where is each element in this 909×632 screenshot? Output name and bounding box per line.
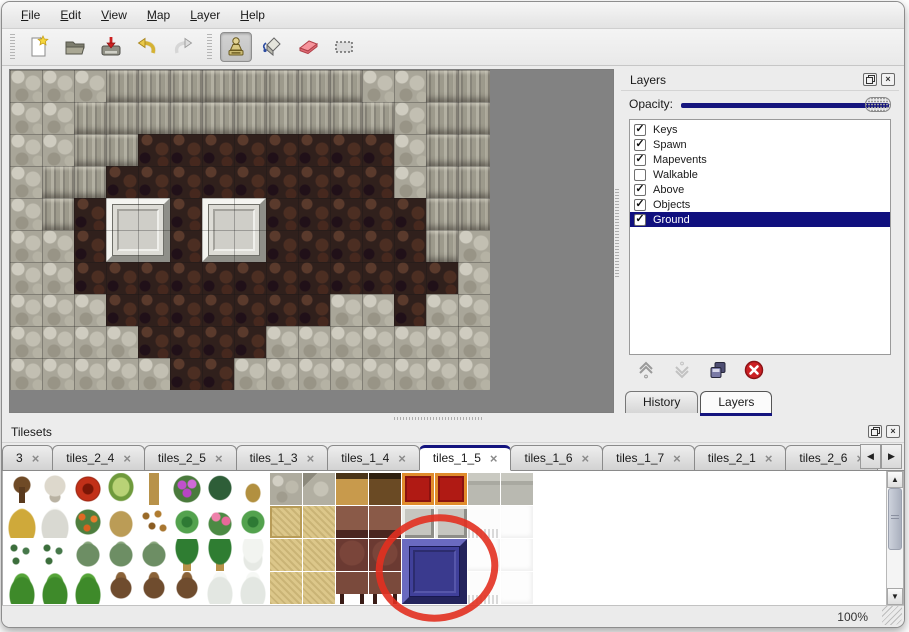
map-tile[interactable] xyxy=(298,358,330,390)
opacity-slider-handle[interactable] xyxy=(865,97,891,112)
tileset-tab-tiles_1_6[interactable]: tiles_1_6× xyxy=(510,445,603,470)
tileset-tile-stonecol[interactable] xyxy=(468,473,500,505)
new-map-button[interactable] xyxy=(23,32,55,62)
close-tab-icon[interactable]: × xyxy=(123,452,131,465)
tileset-tile-deadtwist[interactable] xyxy=(138,572,170,604)
tileset-tab-tiles_1_4[interactable]: tiles_1_4× xyxy=(327,445,420,470)
menu-item-help[interactable]: Help xyxy=(231,5,274,25)
duplicate-layer-button[interactable] xyxy=(707,359,729,384)
tab-history[interactable]: History xyxy=(625,391,698,413)
map-tile[interactable] xyxy=(426,134,458,166)
map-tile[interactable] xyxy=(10,294,42,326)
map-platform-inner xyxy=(213,209,255,251)
map-tile[interactable] xyxy=(298,134,330,166)
tileset-tile-pinkflower[interactable] xyxy=(204,506,236,538)
tileset-tile-palm[interactable] xyxy=(204,539,236,571)
tileset-tile-drygrass[interactable] xyxy=(105,506,137,538)
tileset-tile-browntile[interactable] xyxy=(369,539,401,571)
menu-item-layer[interactable]: Layer xyxy=(181,5,229,25)
map-tile[interactable] xyxy=(138,358,170,390)
map-tile[interactable] xyxy=(106,294,138,326)
map-tile[interactable] xyxy=(266,166,298,198)
tileset-tile-stump[interactable] xyxy=(105,473,137,505)
map-tile[interactable] xyxy=(170,294,202,326)
menu-item-file[interactable]: File xyxy=(12,5,49,25)
tileset-tile-tanweave[interactable] xyxy=(303,539,335,571)
tileset-tab-tiles_2_5[interactable]: tiles_2_5× xyxy=(144,445,237,470)
map-tile[interactable] xyxy=(426,102,458,134)
map-tile[interactable] xyxy=(106,102,138,134)
map-tile[interactable] xyxy=(74,230,106,262)
map-tile[interactable] xyxy=(458,262,490,294)
eraser-tool-button[interactable] xyxy=(292,32,324,62)
tilesets-panel-title: Tilesets xyxy=(11,425,864,439)
tileset-tile-deadtwist[interactable] xyxy=(171,572,203,604)
main-area: Layers × Opacity: ✓Keys✓Spawn✓MapeventsW… xyxy=(2,66,904,415)
duplicate-layer-icon xyxy=(707,359,729,381)
map-tile[interactable] xyxy=(458,198,490,230)
map-tile[interactable] xyxy=(234,326,266,358)
map-tile[interactable] xyxy=(74,166,106,198)
map-tile[interactable] xyxy=(74,198,106,230)
map-tile[interactable] xyxy=(330,198,362,230)
tileset-tile-conifer[interactable] xyxy=(39,572,71,604)
map-tile[interactable] xyxy=(362,198,394,230)
tileset-tab-tiles_1_7[interactable]: tiles_1_7× xyxy=(602,445,695,470)
map-tile[interactable] xyxy=(234,166,266,198)
app-window: FileEditViewMapLayerHelp xyxy=(1,1,905,628)
map-tile[interactable] xyxy=(138,134,170,166)
tileset-scrollbar[interactable]: ▲ ▼ xyxy=(886,471,903,605)
tileset-tile-tanedge[interactable] xyxy=(270,506,302,538)
tileset-tile-tablelegs[interactable] xyxy=(336,572,368,604)
scroll-down-arrow-icon[interactable]: ▼ xyxy=(887,588,903,605)
map-tile[interactable] xyxy=(330,134,362,166)
map-tile[interactable] xyxy=(106,166,138,198)
close-tab-icon[interactable]: × xyxy=(32,452,40,465)
tileset-tile-deadtree[interactable] xyxy=(39,473,71,505)
layer-checkbox[interactable]: ✓ xyxy=(634,154,646,166)
map-tile[interactable] xyxy=(298,262,330,294)
map-tile[interactable] xyxy=(10,102,42,134)
tileset-tile-bush[interactable] xyxy=(105,539,137,571)
map-tile[interactable] xyxy=(426,262,458,294)
tileset-tile-fringe[interactable] xyxy=(468,506,500,538)
tileset-blue-block[interactable] xyxy=(402,539,467,604)
map-tile[interactable] xyxy=(106,262,138,294)
tileset-tab-tiles_2_1[interactable]: tiles_2_1× xyxy=(694,445,787,470)
tileset-tile-tanweave[interactable] xyxy=(270,539,302,571)
map-tile[interactable] xyxy=(42,230,74,262)
map-tile[interactable] xyxy=(74,294,106,326)
layer-checkbox[interactable]: ✓ xyxy=(634,184,646,196)
map-tile[interactable] xyxy=(362,70,394,102)
tileset-tile-tablelegs[interactable] xyxy=(369,572,401,604)
map-tile[interactable] xyxy=(298,70,330,102)
map-tile[interactable] xyxy=(394,294,426,326)
map-tile[interactable] xyxy=(362,358,394,390)
map-tile[interactable] xyxy=(74,134,106,166)
layer-row-mapevents[interactable]: ✓Mapevents xyxy=(630,152,890,167)
tileset-tile-tanweave[interactable] xyxy=(303,506,335,538)
map-tile[interactable] xyxy=(330,102,362,134)
map-tile[interactable] xyxy=(234,102,266,134)
map-tile[interactable] xyxy=(170,70,202,102)
map-tile[interactable] xyxy=(202,294,234,326)
map-tile[interactable] xyxy=(394,326,426,358)
layer-checkbox[interactable]: ✓ xyxy=(634,199,646,211)
map-tile[interactable] xyxy=(330,294,362,326)
lower-layer-icon xyxy=(671,359,693,381)
map-tile[interactable] xyxy=(202,262,234,294)
float-panel-icon[interactable] xyxy=(863,73,877,86)
map-tile[interactable] xyxy=(458,166,490,198)
status-bar: 100% xyxy=(2,605,904,627)
map-tile[interactable] xyxy=(170,134,202,166)
scroll-tabs-left-button[interactable]: ◀ xyxy=(860,444,881,469)
map-tile[interactable] xyxy=(458,358,490,390)
horizontal-splitter[interactable] xyxy=(2,415,904,421)
tileset-tile-leaves[interactable] xyxy=(138,506,170,538)
map-canvas[interactable] xyxy=(9,69,614,413)
layer-checkbox[interactable]: ✓ xyxy=(634,214,646,226)
layer-checkbox[interactable]: ✓ xyxy=(634,139,646,151)
select-tool-icon xyxy=(332,35,356,59)
layer-checkbox[interactable] xyxy=(634,169,646,181)
tileset-tile-tanweave[interactable] xyxy=(303,572,335,604)
layer-row-spawn[interactable]: ✓Spawn xyxy=(630,137,890,152)
map-tile[interactable] xyxy=(202,70,234,102)
tileset-tab-label: tiles_2_6 xyxy=(799,451,847,465)
map-tile[interactable] xyxy=(266,134,298,166)
layers-panel: Layers × Opacity: ✓Keys✓Spawn✓MapeventsW… xyxy=(621,69,902,413)
map-tile[interactable] xyxy=(202,134,234,166)
tileset-tile-orangeflower[interactable] xyxy=(72,506,104,538)
map-tile[interactable] xyxy=(426,70,458,102)
map-tile[interactable] xyxy=(42,262,74,294)
map-tile[interactable] xyxy=(458,326,490,358)
map-tile[interactable] xyxy=(330,326,362,358)
menu-bar: FileEditViewMapLayerHelp xyxy=(2,2,904,29)
map-tile[interactable] xyxy=(330,70,362,102)
tileset-tile-grid[interactable] xyxy=(6,473,533,604)
map-tile[interactable] xyxy=(394,166,426,198)
tileset-tile-redflower[interactable] xyxy=(72,473,104,505)
map-tile[interactable] xyxy=(426,294,458,326)
layer-row-keys[interactable]: ✓Keys xyxy=(630,122,890,137)
map-tile[interactable] xyxy=(234,358,266,390)
map-tile[interactable] xyxy=(266,358,298,390)
tileset-tile-sprigs[interactable] xyxy=(39,539,71,571)
raise-layer-button[interactable] xyxy=(635,359,657,384)
tileset-tile-grayblock[interactable] xyxy=(435,506,467,538)
map-tile[interactable] xyxy=(330,358,362,390)
opacity-slider[interactable] xyxy=(681,97,891,112)
map-tile[interactable] xyxy=(42,70,74,102)
map-tile[interactable] xyxy=(394,358,426,390)
map-tile[interactable] xyxy=(202,102,234,134)
select-tool-button[interactable] xyxy=(328,32,360,62)
close-tab-icon[interactable]: × xyxy=(765,452,773,465)
map-tile[interactable] xyxy=(426,358,458,390)
map-tile[interactable] xyxy=(138,262,170,294)
map-tile[interactable] xyxy=(138,102,170,134)
map-tile[interactable] xyxy=(330,166,362,198)
map-tile[interactable] xyxy=(426,230,458,262)
tab-scroll-arrows: ◀ ▶ xyxy=(860,444,902,469)
tileset-tile-tabletop[interactable] xyxy=(336,506,368,538)
tileset-tile-fern[interactable] xyxy=(204,473,236,505)
map-tile[interactable] xyxy=(10,70,42,102)
map-tile[interactable] xyxy=(170,198,202,230)
map-tile[interactable] xyxy=(10,198,42,230)
scrollbar-track[interactable] xyxy=(887,550,903,588)
close-panel-icon[interactable]: × xyxy=(881,73,895,86)
tileset-tile-browntile[interactable] xyxy=(336,539,368,571)
opacity-row: Opacity: xyxy=(621,91,899,117)
map-tile[interactable] xyxy=(42,326,74,358)
scroll-up-arrow-icon[interactable]: ▲ xyxy=(887,471,903,488)
map-tile[interactable] xyxy=(106,134,138,166)
tileset-tile-tabletop[interactable] xyxy=(369,506,401,538)
map-tile[interactable] xyxy=(266,102,298,134)
map-tile[interactable] xyxy=(106,326,138,358)
map-tile[interactable] xyxy=(10,134,42,166)
map-platform-tile[interactable] xyxy=(106,198,170,262)
map-tile[interactable] xyxy=(202,358,234,390)
tileset-tile-snowpalm[interactable] xyxy=(237,539,269,571)
map-tile[interactable] xyxy=(426,166,458,198)
map-tile[interactable] xyxy=(170,262,202,294)
map-tile[interactable] xyxy=(298,230,330,262)
tileset-content: ▲ ▼ xyxy=(2,471,904,605)
tileset-tile-fringe[interactable] xyxy=(468,572,500,604)
map-tile[interactable] xyxy=(10,326,42,358)
tileset-tab-label: tiles_1_3 xyxy=(250,451,298,465)
map-tile[interactable] xyxy=(170,230,202,262)
layer-row-ground[interactable]: ✓Ground xyxy=(630,212,890,227)
map-tile[interactable] xyxy=(74,326,106,358)
map-tile[interactable] xyxy=(234,70,266,102)
map-tile[interactable] xyxy=(362,262,394,294)
map-tile[interactable] xyxy=(10,358,42,390)
map-tile[interactable] xyxy=(298,326,330,358)
map-tile[interactable] xyxy=(42,166,74,198)
tileset-tile-purplebush[interactable] xyxy=(171,473,203,505)
map-tile[interactable] xyxy=(394,70,426,102)
tileset-tile-white[interactable] xyxy=(501,539,533,571)
close-panel-icon[interactable]: × xyxy=(886,425,900,438)
map-tile[interactable] xyxy=(42,102,74,134)
tileset-tile-sprigs[interactable] xyxy=(6,539,38,571)
float-panel-icon[interactable] xyxy=(868,425,882,438)
map-tile[interactable] xyxy=(426,326,458,358)
tileset-tile-deadtwist[interactable] xyxy=(105,572,137,604)
map-tile[interactable] xyxy=(170,102,202,134)
close-tab-icon[interactable]: × xyxy=(398,452,406,465)
map-tile[interactable] xyxy=(234,134,266,166)
map-tile[interactable] xyxy=(298,166,330,198)
map-tile[interactable] xyxy=(298,102,330,134)
map-tile[interactable] xyxy=(42,198,74,230)
open-folder-icon xyxy=(63,35,87,59)
tileset-tile-conifer[interactable] xyxy=(72,572,104,604)
tileset-tile-palm[interactable] xyxy=(171,539,203,571)
map-platform-inner xyxy=(117,209,159,251)
map-tile[interactable] xyxy=(394,230,426,262)
tileset-tile-snowpile[interactable] xyxy=(39,506,71,538)
scrollbar-thumb[interactable] xyxy=(888,488,902,550)
map-tile[interactable] xyxy=(362,166,394,198)
tileset-tab-tiles_2_4[interactable]: tiles_2_4× xyxy=(52,445,145,470)
tileset-tab-3[interactable]: 3× xyxy=(2,445,53,470)
tileset-tile-wooddark[interactable] xyxy=(369,473,401,505)
tileset-tile-woodtop[interactable] xyxy=(336,473,368,505)
map-tile[interactable] xyxy=(266,230,298,262)
tileset-tile-cobble[interactable] xyxy=(270,473,302,505)
map-tile[interactable] xyxy=(170,358,202,390)
raise-layer-icon xyxy=(635,359,657,381)
map-tile[interactable] xyxy=(42,134,74,166)
map-tile[interactable] xyxy=(362,230,394,262)
close-tab-icon[interactable]: × xyxy=(582,452,590,465)
delete-layer-icon xyxy=(743,359,765,381)
map-tile[interactable] xyxy=(10,230,42,262)
tileset-tile-lily[interactable] xyxy=(171,506,203,538)
map-tile[interactable] xyxy=(266,326,298,358)
map-tile[interactable] xyxy=(394,262,426,294)
map-tile[interactable] xyxy=(362,134,394,166)
tileset-tile-snowpine[interactable] xyxy=(204,572,236,604)
map-tile[interactable] xyxy=(74,358,106,390)
map-tile[interactable] xyxy=(106,70,138,102)
map-tile[interactable] xyxy=(330,262,362,294)
map-tile[interactable] xyxy=(42,294,74,326)
tileset-tile-palmtrunk[interactable] xyxy=(138,473,170,505)
map-tile[interactable] xyxy=(458,230,490,262)
map-tile[interactable] xyxy=(170,326,202,358)
tileset-tile-white[interactable] xyxy=(468,539,500,571)
map-tile[interactable] xyxy=(394,198,426,230)
map-tile[interactable] xyxy=(138,294,170,326)
zoom-level-label: 100% xyxy=(837,610,868,624)
menu-item-view[interactable]: View xyxy=(92,5,136,25)
toolbar-drag-handle[interactable] xyxy=(207,34,212,60)
map-tile[interactable] xyxy=(362,294,394,326)
map-tile[interactable] xyxy=(458,70,490,102)
lower-layer-button[interactable] xyxy=(671,359,693,384)
delete-layer-button[interactable] xyxy=(743,359,765,384)
open-map-button[interactable] xyxy=(59,32,91,62)
map-tile[interactable] xyxy=(394,134,426,166)
fill-tool-button[interactable] xyxy=(256,32,288,62)
map-tile[interactable] xyxy=(458,294,490,326)
tileset-tile-lily[interactable] xyxy=(237,506,269,538)
menu-item-edit[interactable]: Edit xyxy=(51,5,90,25)
map-tile[interactable] xyxy=(266,70,298,102)
tileset-tile-sprout[interactable] xyxy=(237,473,269,505)
layer-checkbox[interactable]: ✓ xyxy=(634,124,646,136)
map-tile[interactable] xyxy=(298,198,330,230)
map-tile[interactable] xyxy=(394,102,426,134)
tileset-tile-stonecol[interactable] xyxy=(501,473,533,505)
map-tile[interactable] xyxy=(42,358,74,390)
map-tile[interactable] xyxy=(74,102,106,134)
map-tile[interactable] xyxy=(74,70,106,102)
tileset-tile-cobble2[interactable] xyxy=(303,473,335,505)
map-tile[interactable] xyxy=(298,294,330,326)
tileset-tile-carpet[interactable] xyxy=(402,473,434,505)
toolbar-drag-handle[interactable] xyxy=(10,34,15,60)
map-tile[interactable] xyxy=(138,70,170,102)
map-tile[interactable] xyxy=(458,134,490,166)
close-tab-icon[interactable]: × xyxy=(215,452,223,465)
map-tile[interactable] xyxy=(266,198,298,230)
tileset-tile-grayblock[interactable] xyxy=(402,506,434,538)
save-map-button[interactable] xyxy=(95,32,127,62)
map-tile[interactable] xyxy=(138,326,170,358)
tileset-tile-bush[interactable] xyxy=(138,539,170,571)
undo-button[interactable] xyxy=(131,32,163,62)
close-tab-icon[interactable]: × xyxy=(490,452,498,465)
tileset-tile-conifer[interactable] xyxy=(6,572,38,604)
map-tile[interactable] xyxy=(170,166,202,198)
map-tile[interactable] xyxy=(234,262,266,294)
map-tile[interactable] xyxy=(202,166,234,198)
tileset-tile-trunk[interactable] xyxy=(6,473,38,505)
map-tile[interactable] xyxy=(74,262,106,294)
close-tab-icon[interactable]: × xyxy=(673,452,681,465)
layer-row-walkable[interactable]: Walkable xyxy=(630,167,890,182)
map-tile[interactable] xyxy=(426,198,458,230)
tab-layers[interactable]: Layers xyxy=(700,391,772,413)
scroll-tabs-right-button[interactable]: ▶ xyxy=(881,444,902,469)
map-platform-tile[interactable] xyxy=(202,198,266,262)
tileset-tile-haypile[interactable] xyxy=(6,506,38,538)
tileset-tile-tanweave[interactable] xyxy=(270,572,302,604)
map-tile[interactable] xyxy=(266,294,298,326)
stamp-tool-button[interactable] xyxy=(220,32,252,62)
tileset-tile-white[interactable] xyxy=(501,572,533,604)
layer-row-objects[interactable]: ✓Objects xyxy=(630,197,890,212)
map-grid[interactable] xyxy=(10,70,490,390)
map-tile[interactable] xyxy=(10,262,42,294)
map-tile[interactable] xyxy=(362,326,394,358)
tileset-tab-tiles_1_3[interactable]: tiles_1_3× xyxy=(236,445,329,470)
redo-icon xyxy=(171,35,195,59)
layer-row-above[interactable]: ✓Above xyxy=(630,182,890,197)
menu-item-map[interactable]: Map xyxy=(138,5,179,25)
map-tile[interactable] xyxy=(202,326,234,358)
map-tile[interactable] xyxy=(458,102,490,134)
map-tile[interactable] xyxy=(10,166,42,198)
resize-grip[interactable] xyxy=(882,606,902,625)
close-tab-icon[interactable]: × xyxy=(307,452,315,465)
map-tile[interactable] xyxy=(138,166,170,198)
tileset-tab-tiles_1_5[interactable]: tiles_1_5× xyxy=(419,445,512,471)
redo-button[interactable] xyxy=(167,32,199,62)
map-tile[interactable] xyxy=(266,262,298,294)
tileset-tile-snowpine[interactable] xyxy=(237,572,269,604)
map-tile[interactable] xyxy=(106,358,138,390)
map-tile[interactable] xyxy=(330,230,362,262)
vertical-splitter[interactable] xyxy=(614,69,621,413)
map-tile[interactable] xyxy=(234,294,266,326)
tileset-tile-bush[interactable] xyxy=(72,539,104,571)
map-tile[interactable] xyxy=(362,102,394,134)
tileset-tile-carpet[interactable] xyxy=(435,473,467,505)
tileset-tile-white[interactable] xyxy=(501,506,533,538)
